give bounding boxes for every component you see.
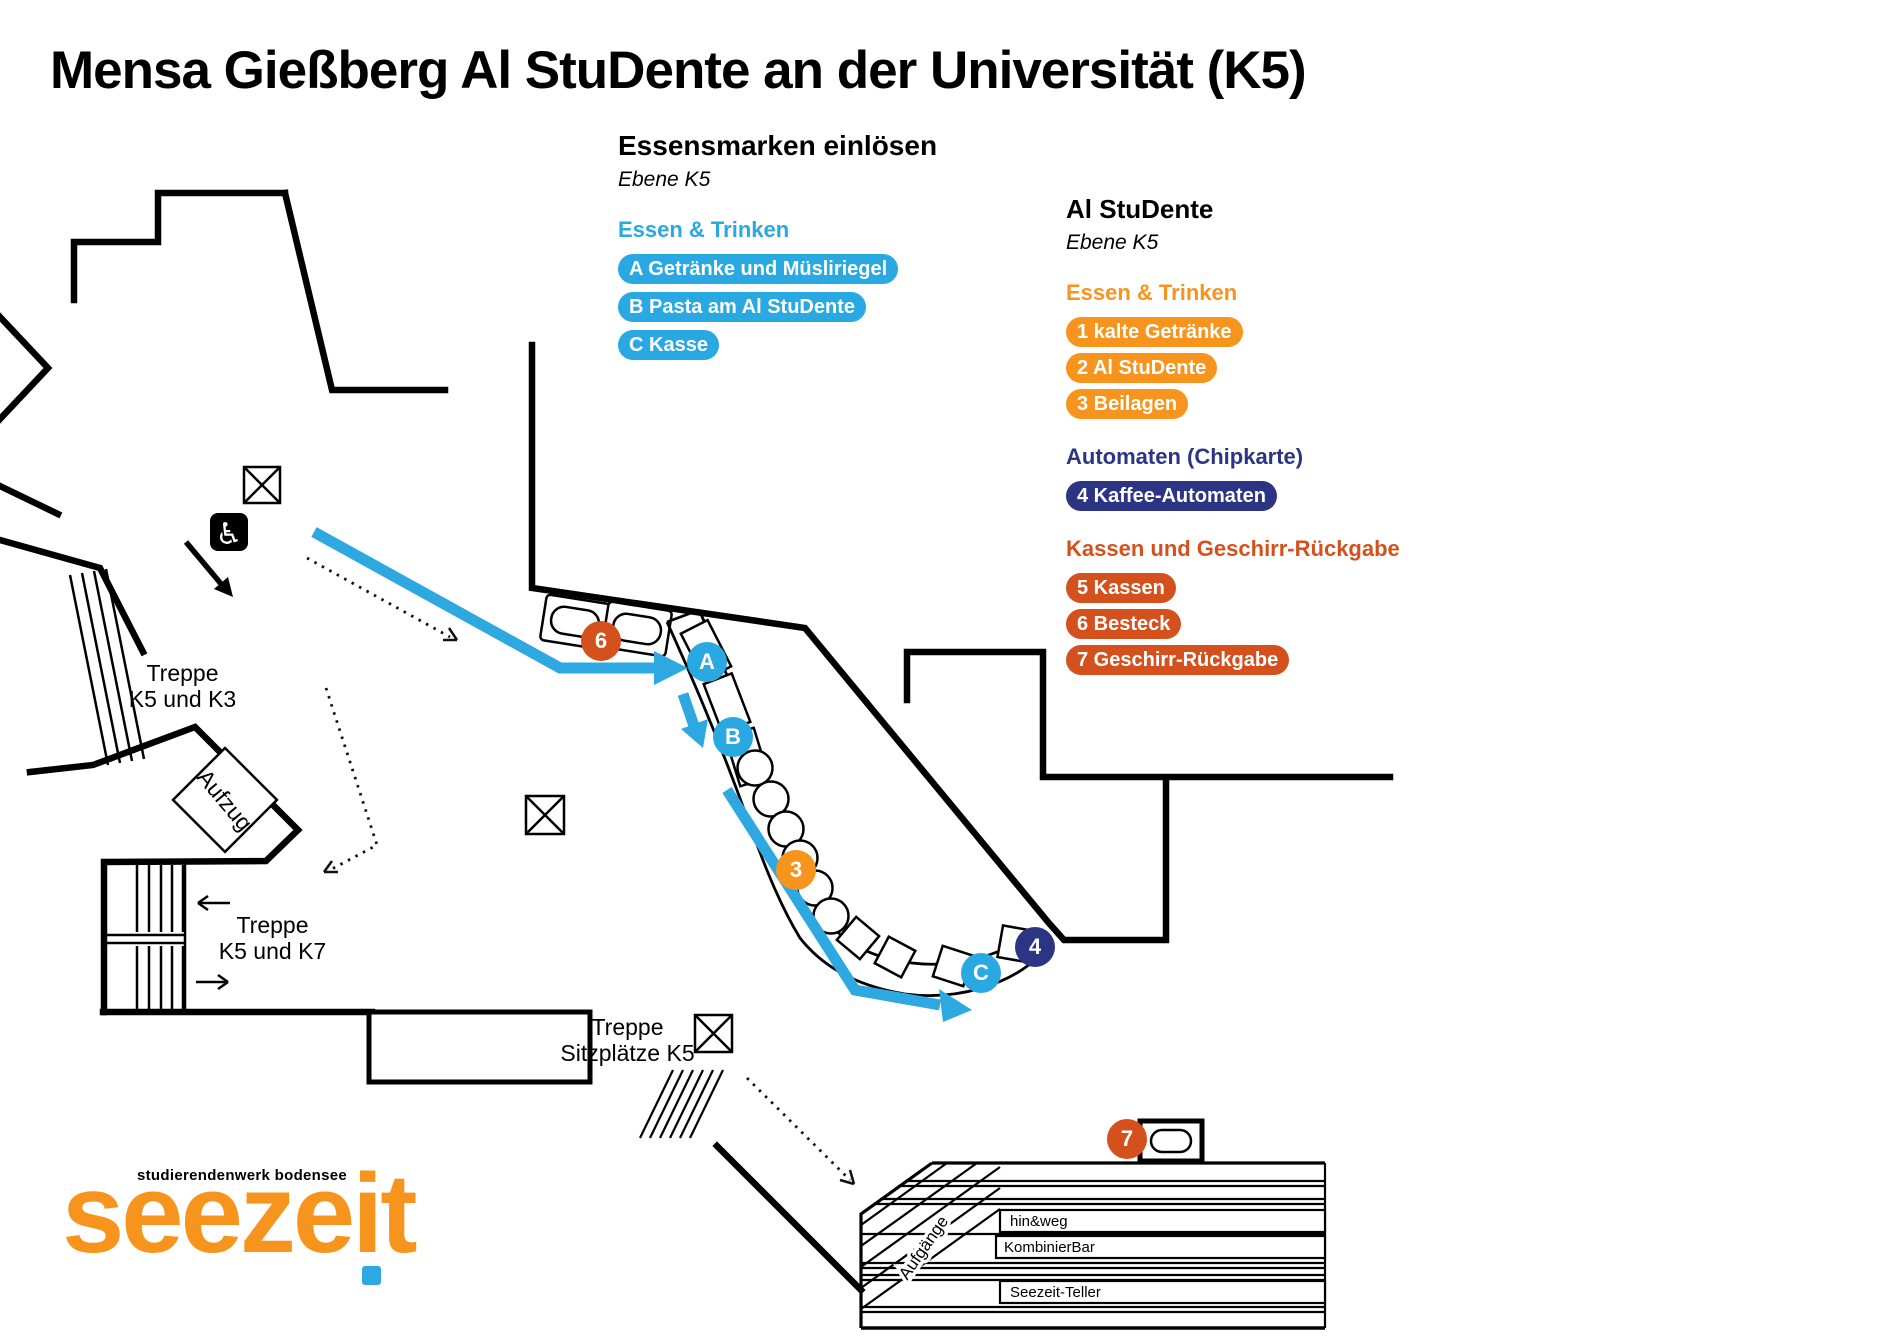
legend-pill: A Getränke und Müsliriegel: [618, 254, 898, 284]
dotted-paths: [307, 558, 854, 1184]
legend-pill: 4 Kaffee-Automaten: [1066, 481, 1277, 511]
legend-pill: 7 Geschirr-Rückgabe: [1066, 645, 1289, 675]
map-marker-4: 4: [1015, 927, 1055, 967]
legend-alstudente: Al StuDente Ebene K5 Essen & Trinken1 ka…: [1066, 194, 1400, 681]
legend-section-title: Essen & Trinken: [1066, 280, 1400, 306]
label-stairs-seats: Treppe Sitzplätze K5: [540, 1014, 715, 1066]
page-title: Mensa Gießberg Al StuDente an der Univer…: [50, 40, 1306, 101]
map-marker-B: B: [713, 717, 753, 757]
tray-return: [1140, 1121, 1202, 1161]
legend-alstudente-level: Ebene K5: [1066, 231, 1400, 255]
legend-pill: 1 kalte Getränke: [1066, 317, 1243, 347]
legend-redeem: Essensmarken einlösen Ebene K5 Essen & T…: [618, 130, 937, 368]
logo-dot: [362, 1266, 381, 1285]
legend-redeem-level: Ebene K5: [618, 168, 937, 192]
pillar-icon: [526, 796, 564, 834]
legend-pill: 5 Kassen: [1066, 573, 1176, 603]
legend-section-title: Essen & Trinken: [618, 217, 937, 243]
stairs-seats: [640, 1070, 723, 1138]
svg-text:♿: ♿: [216, 517, 243, 552]
elevator: Aufzug: [173, 748, 277, 852]
label-counter-hinweg: hin&weg: [1010, 1213, 1068, 1230]
legend-pill: C Kasse: [618, 330, 719, 360]
legend-pill: 6 Besteck: [1066, 609, 1181, 639]
map-marker-A: A: [687, 642, 727, 682]
legend-pill: B Pasta am Al StuDente: [618, 292, 866, 322]
floorplan-page: { "title": "Mensa Gießberg Al StuDente a…: [0, 0, 1900, 1342]
label-counter-seezeitteller: Seezeit-Teller: [1010, 1284, 1101, 1301]
wheelchair-icon: ♿: [210, 513, 248, 552]
legend-pill: 2 Al StuDente: [1066, 353, 1217, 383]
legend-section-title: Automaten (Chipkarte): [1066, 444, 1400, 470]
legend-right-sections: Essen & Trinken1 kalte Getränke2 Al StuD…: [1066, 280, 1400, 675]
floor-plan: Aufzug ♿: [0, 0, 1900, 1342]
pillar-icons: [244, 467, 732, 1052]
seezeit-wordmark: seezeit: [62, 1158, 415, 1270]
map-marker-C: C: [961, 953, 1001, 993]
legend-alstudente-heading: Al StuDente: [1066, 194, 1400, 225]
pillar-icon: [244, 467, 280, 503]
label-stairs-k3: Treppe K5 und K3: [105, 660, 260, 712]
legend-redeem-heading: Essensmarken einlösen: [618, 130, 937, 162]
legend-section-title: Kassen und Geschirr-Rückgabe: [1066, 536, 1400, 562]
label-stairs-k7: Treppe K5 und K7: [185, 912, 360, 964]
label-counter-kombinierbar: KombinierBar: [1004, 1239, 1095, 1256]
legend-pill: 3 Beilagen: [1066, 389, 1188, 419]
map-marker-7: 7: [1107, 1119, 1147, 1159]
legend-left-sections: Essen & TrinkenA Getränke und Müsliriege…: [618, 217, 937, 360]
map-marker-3: 3: [776, 850, 816, 890]
map-marker-6: 6: [581, 621, 621, 661]
